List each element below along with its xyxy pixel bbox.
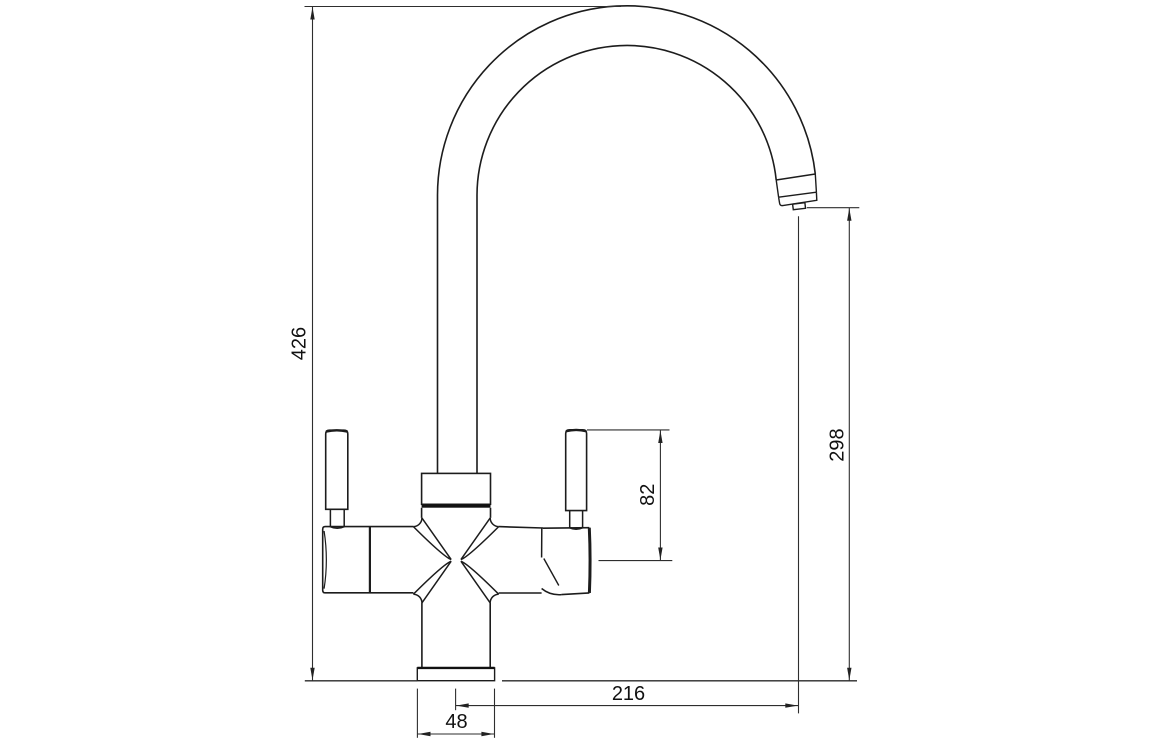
svg-text:216: 216 bbox=[612, 683, 645, 705]
svg-text:82: 82 bbox=[637, 484, 659, 506]
svg-text:48: 48 bbox=[445, 711, 467, 733]
svg-text:426: 426 bbox=[289, 327, 311, 360]
svg-text:298: 298 bbox=[827, 428, 849, 461]
